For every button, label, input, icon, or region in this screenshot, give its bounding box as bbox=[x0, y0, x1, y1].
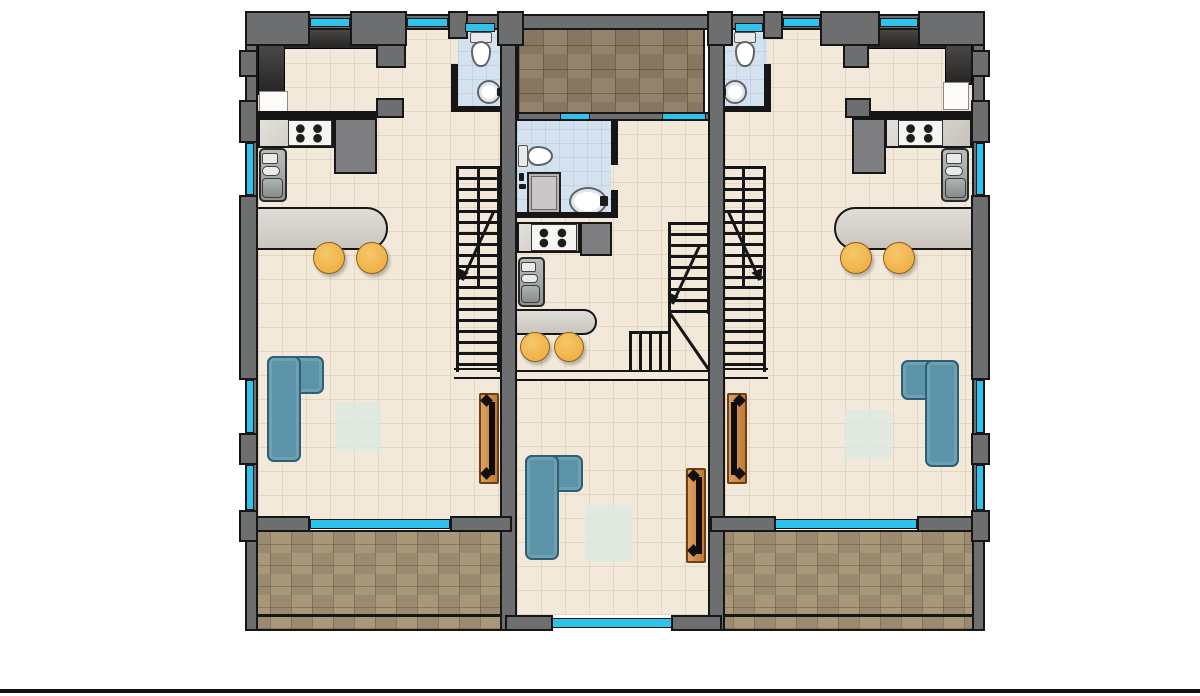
right-fridge bbox=[943, 82, 969, 110]
center-counter-corner bbox=[580, 222, 612, 256]
right-rug bbox=[845, 410, 892, 459]
left-bath-wall-bottom bbox=[451, 106, 503, 112]
center-tv-screen bbox=[696, 477, 702, 554]
window-left-bathroom bbox=[465, 23, 495, 32]
center-bath-wall-right-upper bbox=[611, 120, 618, 165]
left-wall-pilaster-5 bbox=[239, 510, 258, 542]
top-wall-pilaster-6 bbox=[763, 11, 783, 39]
left-sink-basin bbox=[262, 178, 283, 198]
center-bath-wall-bottom bbox=[517, 212, 618, 218]
right-sink-basin bbox=[945, 178, 966, 198]
right-bath-wall-bottom bbox=[719, 106, 771, 112]
left-wall-pilaster-3 bbox=[239, 195, 258, 380]
right-sink-soap-icon bbox=[945, 166, 963, 176]
center-washing-machine-door bbox=[531, 176, 557, 210]
window-center-living bbox=[552, 618, 672, 628]
top-wall-pilaster-7 bbox=[820, 11, 880, 46]
right-tv-screen bbox=[731, 402, 737, 475]
left-sink-soap-icon bbox=[262, 166, 280, 176]
right-wall-pilaster-2 bbox=[971, 100, 990, 143]
left-stool-1 bbox=[313, 242, 345, 274]
right-wall-pilaster-5 bbox=[971, 510, 990, 542]
floor-plan bbox=[0, 0, 1200, 696]
window-right-bathroom bbox=[735, 23, 763, 32]
center-bath-faucet-icon-2 bbox=[519, 184, 526, 189]
left-staircase-lower-flight bbox=[456, 286, 500, 372]
left-wall-pilaster-1 bbox=[239, 50, 258, 77]
left-rug bbox=[335, 402, 381, 451]
window-top-right-2 bbox=[880, 18, 918, 27]
party-wall-left-center bbox=[500, 14, 517, 631]
window-right-wall-1 bbox=[976, 143, 984, 195]
center-bottom-wall-a bbox=[505, 615, 553, 631]
left-counter-corner bbox=[334, 118, 377, 174]
center-washbasin-faucet bbox=[600, 196, 608, 206]
right-staircase-divider bbox=[742, 166, 745, 286]
right-washbasin bbox=[723, 80, 747, 104]
right-sink-faucet-icon bbox=[946, 153, 962, 164]
right-wall-pilaster-3 bbox=[971, 195, 990, 380]
top-wall-pilaster-5 bbox=[707, 11, 733, 46]
left-kitchen-corner-post bbox=[376, 98, 404, 118]
center-bath-wall-right-lower bbox=[611, 190, 618, 218]
center-sink-basin bbox=[521, 285, 540, 303]
window-left-living bbox=[310, 519, 450, 529]
left-wall-pilaster-2 bbox=[239, 100, 258, 143]
right-kitchen-counter-side bbox=[945, 45, 972, 85]
left-living-bottom-wall-b bbox=[450, 516, 512, 532]
window-top-left-2 bbox=[407, 18, 448, 27]
right-sofa-body bbox=[925, 360, 959, 467]
left-staircase-divider bbox=[477, 166, 480, 286]
left-sofa-body bbox=[267, 356, 301, 462]
top-wall-pilaster-1 bbox=[245, 11, 310, 46]
right-stool-2 bbox=[883, 242, 915, 274]
left-terrace-edge-line bbox=[249, 614, 510, 617]
right-living-bottom-wall-a bbox=[710, 516, 776, 532]
window-right-wall-3 bbox=[976, 465, 984, 510]
left-stool-2 bbox=[356, 242, 388, 274]
ground-line bbox=[0, 689, 1200, 693]
left-sink-faucet-icon bbox=[262, 153, 278, 164]
center-roof-terrace bbox=[517, 28, 705, 120]
right-counter-corner bbox=[852, 118, 886, 174]
right-wall-pilaster-4 bbox=[971, 433, 990, 465]
left-kitchen-counter-side bbox=[258, 45, 285, 95]
center-island-counter bbox=[517, 309, 597, 335]
top-wall-pilaster-4 bbox=[497, 11, 524, 46]
window-right-living bbox=[775, 519, 917, 529]
window-right-wall-2 bbox=[976, 380, 984, 433]
center-gas-stove bbox=[531, 224, 577, 251]
left-bath-wall-lower bbox=[451, 64, 458, 112]
window-top-left-1 bbox=[310, 18, 350, 27]
window-roof-terrace-2 bbox=[662, 113, 706, 120]
center-stool-2 bbox=[554, 332, 584, 362]
window-roof-terrace-1 bbox=[560, 113, 590, 120]
window-left-wall-3 bbox=[246, 465, 254, 510]
left-tv-screen bbox=[489, 402, 495, 475]
center-bottom-wall-b bbox=[671, 615, 722, 631]
center-staircase-horizontal-flight bbox=[629, 331, 669, 372]
right-terrace-edge-line bbox=[712, 614, 981, 617]
center-sofa-body bbox=[525, 455, 559, 560]
top-wall-pilaster-8 bbox=[918, 11, 985, 46]
left-kitchen-partition-wall bbox=[245, 111, 378, 118]
party-wall-center-right bbox=[708, 14, 725, 631]
center-sink-soap-icon bbox=[521, 274, 538, 283]
left-gas-stove bbox=[288, 120, 332, 146]
right-stool-1 bbox=[840, 242, 872, 274]
window-top-right-1 bbox=[783, 18, 820, 27]
center-bath-faucet-icon-1 bbox=[519, 173, 524, 181]
right-kitchen-corner-post bbox=[845, 98, 871, 118]
center-sink-faucet-icon bbox=[521, 262, 536, 272]
center-stool-1 bbox=[520, 332, 550, 362]
left-wall-pilaster-4 bbox=[239, 433, 258, 465]
center-rug bbox=[585, 505, 632, 562]
top-wall-pilaster-2 bbox=[350, 11, 407, 46]
right-staircase-lower-flight bbox=[722, 286, 766, 372]
window-left-wall-1 bbox=[246, 143, 254, 195]
right-gas-stove bbox=[898, 120, 943, 146]
right-bath-wall-lower bbox=[764, 64, 771, 112]
window-left-wall-2 bbox=[246, 380, 254, 433]
right-wall-pilaster-1 bbox=[971, 50, 990, 77]
